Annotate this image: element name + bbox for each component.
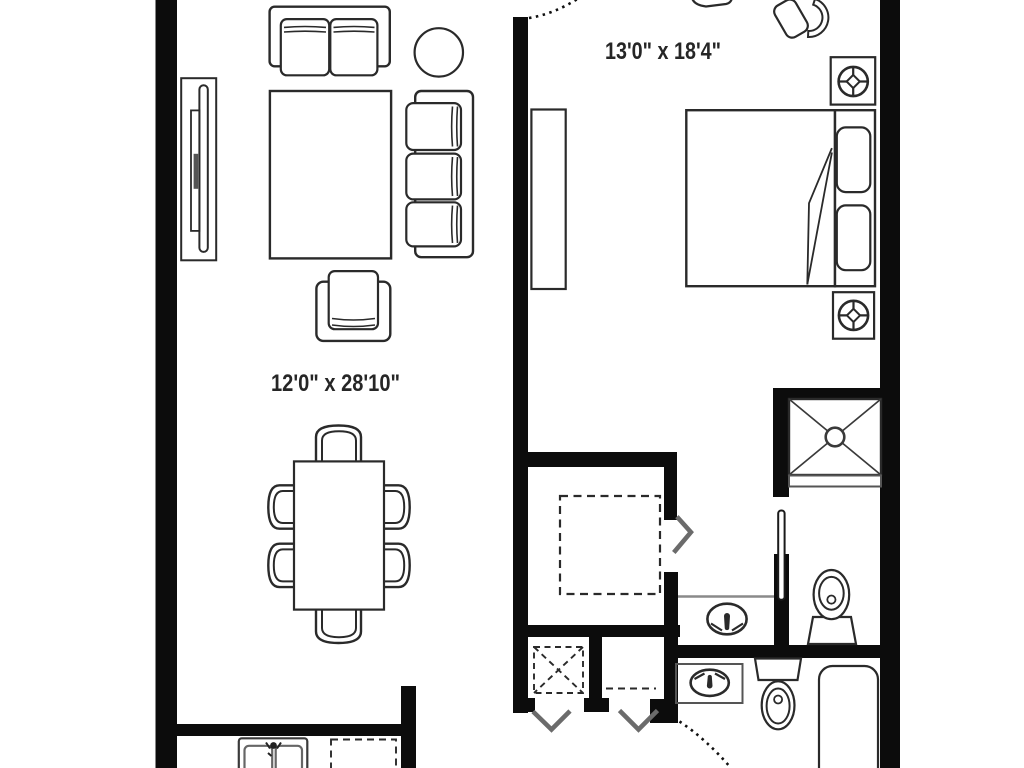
svg-text:13'0" x 18'4": 13'0" x 18'4" xyxy=(605,38,721,65)
svg-text:12'0" x 28'10": 12'0" x 28'10" xyxy=(271,370,400,397)
